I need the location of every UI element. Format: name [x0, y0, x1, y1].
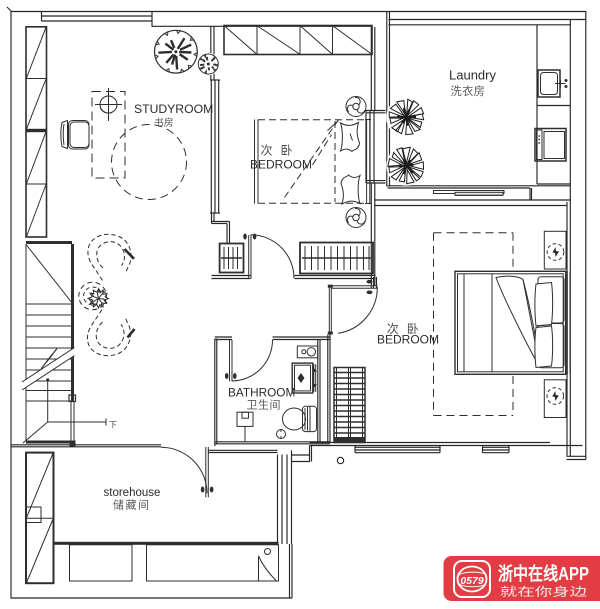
- svg-text:0579: 0579: [460, 575, 484, 587]
- svg-text:BATHROOM: BATHROOM: [228, 385, 295, 399]
- svg-text:次卧: 次卧: [261, 143, 301, 157]
- svg-text:BEDROOM: BEDROOM: [250, 158, 312, 172]
- svg-text:洗衣房: 洗衣房: [451, 84, 486, 98]
- svg-text:storehouse: storehouse: [104, 487, 161, 499]
- svg-text:BEDROOM: BEDROOM: [377, 332, 439, 346]
- svg-text:储藏间: 储藏间: [113, 498, 151, 512]
- svg-text:Laundry: Laundry: [449, 68, 496, 83]
- svg-text:就在你身边: 就在你身边: [500, 585, 588, 599]
- svg-text:卫生间: 卫生间: [247, 398, 282, 412]
- svg-text:下: 下: [109, 421, 117, 430]
- svg-text:浙中在线APP: 浙中在线APP: [498, 563, 589, 584]
- svg-text:书房: 书房: [154, 116, 174, 129]
- svg-text:STUDYROOM: STUDYROOM: [134, 102, 213, 116]
